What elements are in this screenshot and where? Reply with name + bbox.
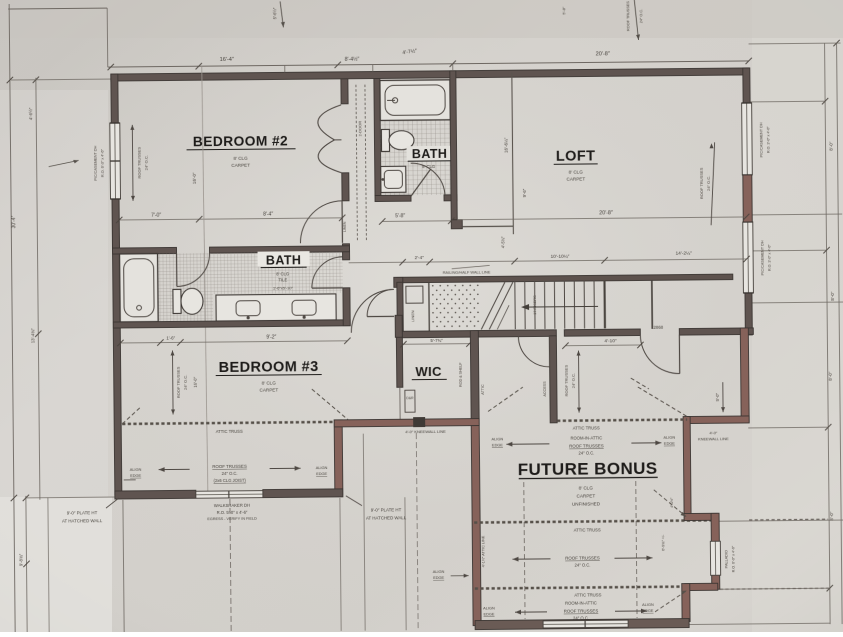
svg-text:ATTIC TRUSS: ATTIC TRUSS [573,425,600,430]
svg-text:WALKSHAKER DH: WALKSHAKER DH [214,503,250,508]
svg-text:4′-1½″ ATTIC LINE: 4′-1½″ ATTIC LINE [481,535,485,567]
svg-text:ROOF TRUSSES: ROOF TRUSSES [212,464,247,469]
svg-text:CARPET: CARPET [231,163,250,168]
svg-text:1′-6″: 1′-6″ [166,335,175,340]
svg-text:EDGE: EDGE [433,575,444,580]
svg-text:AT HATCHED WALL: AT HATCHED WALL [62,518,103,523]
svg-text:24″ O.C.: 24″ O.C. [571,373,576,388]
svg-text:BEDROOM #3: BEDROOM #3 [219,359,319,376]
svg-text:CARPET: CARPET [567,177,586,182]
svg-text:EDGE: EDGE [492,442,503,447]
svg-text:ALIGN: ALIGN [433,569,445,574]
svg-text:TILE: TILE [278,277,287,282]
svg-text:24″ O.C.: 24″ O.C. [706,176,711,191]
svg-text:20′-8″: 20′-8″ [596,51,610,57]
svg-text:8′-0″: 8′-0″ [828,371,833,381]
svg-text:KNEEWALL LINE: KNEEWALL LINE [698,436,729,441]
svg-text:2′-4″: 2′-4″ [415,255,425,260]
svg-text:10′-10¼″: 10′-10¼″ [551,254,570,260]
svg-text:R.O. 5′-0″ x 4′-6″: R.O. 5′-0″ x 4′-6″ [217,510,248,515]
svg-text:4′-5¾″: 4′-5¾″ [500,236,505,248]
svg-text:CARPET: CARPET [577,493,596,498]
svg-text:ROOM-IN-ATTIC: ROOM-IN-ATTIC [570,435,602,440]
svg-text:CARPET: CARPET [260,387,279,392]
svg-text:R.O. 6′-0″ x 4′-6″: R.O. 6′-0″ x 4′-6″ [731,545,735,572]
svg-text:ATTIC TRUSS: ATTIC TRUSS [574,527,601,532]
svg-text:8′ CLG: 8′ CLG [234,156,249,161]
svg-text:24″ O.C.: 24″ O.C. [575,562,591,567]
svg-text:5′-6½″: 5′-6½″ [272,7,277,19]
svg-text:R.O. 3′-0″ x 4′-6″: R.O. 3′-0″ x 4′-6″ [766,126,770,153]
svg-text:24″ O.C.: 24″ O.C. [578,450,594,455]
svg-text:BATH: BATH [412,147,448,161]
svg-text:PIC/CASEMENT DH: PIC/CASEMENT DH [760,240,764,275]
svg-text:5′-7¾″: 5′-7¾″ [430,338,443,343]
svg-text:30′-4″: 30′-4″ [11,215,17,228]
svg-text:EDGE: EDGE [483,611,494,616]
svg-text:EGRESS - VERIFY IN FIELD: EGRESS - VERIFY IN FIELD [207,517,257,521]
svg-text:4′-1½″: 4′-1½″ [670,497,674,508]
svg-text:FUTURE BONUS: FUTURE BONUS [518,459,658,479]
svg-text:2868: 2868 [653,325,663,330]
svg-text:8′ CLG: 8′ CLG [262,380,277,385]
svg-text:LINEN: LINEN [410,310,415,322]
svg-text:24″ O.C.: 24″ O.C. [183,375,188,390]
svg-text:4′-0″: 4′-0″ [709,430,717,435]
svg-text:8′-4½″: 8′-4½″ [345,56,360,63]
svg-text:PIC/CASEMENT DH: PIC/CASEMENT DH [759,122,763,157]
svg-text:ROOF TRUSSES: ROOF TRUSSES [564,608,599,613]
svg-text:WIC: WIC [415,364,442,379]
svg-text:EDGE: EDGE [130,473,141,478]
svg-text:D&R: D&R [406,396,414,400]
svg-text:ALIGN: ALIGN [483,605,495,610]
svg-text:EDGE: EDGE [642,608,653,613]
svg-text:7′-0″: 7′-0″ [151,213,161,219]
svg-text:BATH: BATH [266,253,302,267]
svg-text:8′-4″: 8′-4″ [263,212,273,218]
svg-text:ROOF TRUSSES: ROOF TRUSSES [176,366,181,398]
svg-text:ROOF TRUSSES: ROOF TRUSSES [626,1,630,31]
svg-text:ATTIC TRUSS: ATTIC TRUSS [574,592,601,597]
svg-text:EDGE: EDGE [316,471,327,476]
svg-text:17 RISERS: 17 RISERS [533,295,537,315]
svg-text:8′-0″: 8′-0″ [830,291,835,301]
svg-text:16′-4″: 16′-4″ [220,57,234,63]
svg-text:16′-0″: 16′-0″ [193,376,198,387]
svg-text:20′-8″: 20′-8″ [599,210,613,216]
svg-text:5′-0″: 5′-0″ [715,393,720,402]
svg-text:ALIGN: ALIGN [663,435,675,440]
svg-text:R.O. 3′-0″ x 4′-6″: R.O. 3′-0″ x 4′-6″ [767,244,771,271]
svg-text:ATTIC TRUSS: ATTIC TRUSS [216,429,243,434]
svg-text:5′-8″: 5′-8″ [395,213,405,219]
svg-text:8′ CLG: 8′ CLG [276,271,289,276]
svg-text:9′-6″: 9′-6″ [522,188,527,197]
svg-text:13′-4¾″: 13′-4¾″ [30,328,35,343]
svg-text:9′-0″ PLATE HT: 9′-0″ PLATE HT [67,510,98,515]
svg-text:9′-2″: 9′-2″ [266,334,276,340]
svg-text:9′-0″ PLATE HT: 9′-0″ PLATE HT [371,507,402,512]
svg-text:PIC/CASEMENT DH: PIC/CASEMENT DH [94,145,98,180]
svg-text:ALIGN: ALIGN [316,465,328,470]
svg-text:ROOM-IN-ATTIC: ROOM-IN-ATTIC [565,600,597,605]
svg-text:LOFT: LOFT [556,148,596,164]
svg-text:8′ CLG: 8′ CLG [579,485,594,490]
svg-text:ROOF TRUSSES: ROOF TRUSSES [699,167,704,199]
svg-text:ROOF TRUSSES: ROOF TRUSSES [137,147,142,179]
svg-text:ALIGN: ALIGN [130,467,142,472]
svg-text:8′-0″: 8′-0″ [829,511,834,521]
svg-text:24″ O.C.: 24″ O.C. [222,471,238,476]
svg-text:8′-0″: 8′-0″ [828,141,833,151]
svg-text:LINEN: LINEN [343,221,347,232]
svg-text:BEDROOM #2: BEDROOM #2 [193,133,288,149]
svg-text:4′-0″ KNEEWALL LINE: 4′-0″ KNEEWALL LINE [405,429,446,434]
svg-text:ALIGN: ALIGN [491,436,503,441]
svg-text:ATTIC: ATTIC [481,384,485,395]
svg-text:ROOF TRUSSES: ROOF TRUSSES [564,365,569,397]
svg-text:PALLADIO: PALLADIO [724,550,728,568]
svg-text:ALIGN: ALIGN [642,602,654,607]
svg-text:ACCESS: ACCESS [543,381,547,397]
svg-text:R.O. 6′-0″ x 4′-6″: R.O. 6′-0″ x 4′-6″ [101,148,105,177]
svg-text:1′-6″x5′-10″: 1′-6″x5′-10″ [273,285,294,290]
svg-text:UNFINISHED: UNFINISHED [572,501,601,506]
svg-text:24″ O.C.: 24″ O.C. [639,9,643,23]
svg-text:ROD & SHELF: ROD & SHELF [459,362,463,387]
svg-text:4′-6½″: 4′-6½″ [28,107,33,120]
svg-text:14′-2¼″: 14′-2¼″ [676,250,693,256]
svg-text:2-DOOR: 2-DOOR [357,121,362,137]
svg-text:4′-10″: 4′-10″ [604,338,617,344]
svg-text:24″ O.C.: 24″ O.C. [144,155,149,170]
svg-text:8′ CLG: 8′ CLG [569,170,584,175]
svg-text:16′-6¼″: 16′-6¼″ [503,137,508,153]
svg-text:9′-8¾″: 9′-8¾″ [18,553,23,566]
svg-text:ROOF TRUSSES: ROOF TRUSSES [565,555,600,560]
svg-text:16′-0″: 16′-0″ [192,172,197,184]
svg-text:EDGE: EDGE [664,441,675,446]
svg-text:AT HATCHED WALL: AT HATCHED WALL [366,515,407,520]
svg-text:RAILING/HALF WALL LINE: RAILING/HALF WALL LINE [443,269,491,274]
svg-text:ROOF TRUSSES: ROOF TRUSSES [569,443,604,448]
svg-text:5′-8″: 5′-8″ [561,6,566,15]
svg-text:(2x6 CLG JOIST): (2x6 CLG JOIST) [214,478,247,483]
svg-text:6′-9¾″ +/-: 6′-9¾″ +/- [661,534,665,551]
